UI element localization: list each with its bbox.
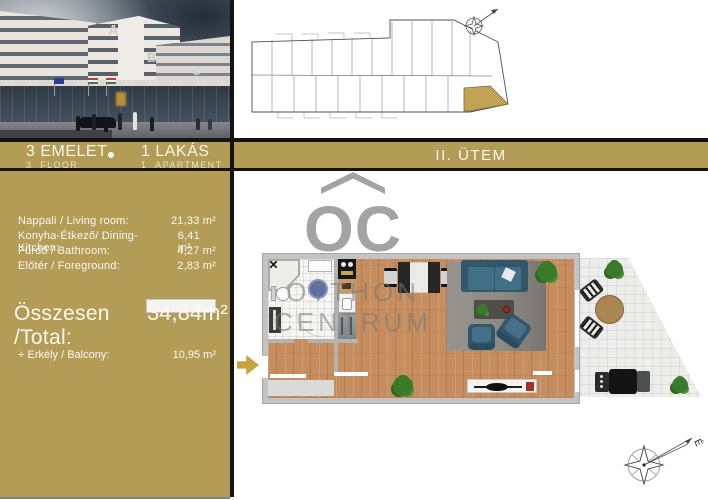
interior-wall (334, 343, 338, 373)
highlighted-unit (464, 86, 508, 111)
potted-plant (537, 262, 557, 282)
floor-plan-area: OC OTTHON CENTRUM (234, 171, 708, 500)
balcony-table (595, 295, 624, 324)
kitchen-counter (338, 259, 356, 339)
glass-storefront (0, 86, 230, 122)
room-name: Fürdő / Bathroom: (18, 245, 110, 260)
listing-sheet: A B C (0, 0, 708, 500)
room-area: 4,27 m² (177, 245, 216, 260)
pedestrian (133, 112, 137, 130)
interior-wall (308, 339, 358, 343)
potted-plant (393, 376, 413, 396)
building-photo: A B C (0, 0, 230, 138)
bowl (503, 306, 510, 313)
balcony-label: + Erkély / Balcony: (18, 349, 109, 361)
building-letter-a: A (108, 22, 119, 39)
tv (486, 383, 508, 391)
crosswalk (0, 130, 112, 138)
fixture-marker-icon (270, 261, 277, 268)
washing-machine (269, 307, 281, 333)
worktop (338, 279, 356, 293)
kitchen-sink (338, 293, 356, 313)
tv-stand (467, 379, 537, 393)
pedestrian (196, 118, 200, 130)
compass-north-label: É (691, 437, 704, 449)
interior-wall (268, 339, 294, 343)
pedestrian (104, 117, 108, 132)
room-name: Konyha-Étkező/ Dining-Kitchen: (18, 230, 178, 245)
washbasin (308, 279, 328, 299)
pedestrian (150, 117, 154, 131)
fridge (338, 313, 356, 339)
key-plan-drawing (242, 2, 512, 132)
eu-flag (54, 78, 64, 84)
total-row: Összesen /Total: 34,84m² (14, 299, 216, 350)
building-letter-c: C (192, 64, 201, 78)
room-area: 2,83 m² (177, 260, 216, 275)
balcony-row: + Erkély / Balcony: 10,95 m² (18, 349, 216, 361)
balcony-value: 10,95 m² (173, 349, 216, 361)
dining-chair (384, 268, 397, 287)
balcony-plant (606, 261, 623, 278)
hungarian-flag (88, 78, 98, 84)
room-row: Fürdő / Bathroom: 4,27 m² (18, 245, 216, 260)
sofa (461, 260, 528, 292)
car-silhouette (80, 117, 116, 128)
total-label: Összesen /Total: (14, 302, 146, 350)
entrance-door (262, 356, 268, 378)
watermark-roof-icon (321, 172, 385, 194)
media-box (526, 382, 534, 391)
balcony-plant (672, 377, 688, 393)
total-value: 34,84m² (146, 299, 216, 313)
threshold (270, 374, 306, 378)
pedestrian (92, 114, 96, 130)
balcony-door (574, 370, 580, 392)
threshold (533, 371, 552, 375)
room-list: Nappali / Living room: 21,33 m² Konyha-É… (18, 215, 216, 275)
bathroom-vanity (308, 260, 332, 272)
watermark-logo: OC (234, 199, 472, 260)
room-name: Nappali / Living room: (18, 215, 129, 230)
grill (595, 369, 650, 394)
floor-label-hu: 3 EMELET (26, 145, 107, 159)
stove (338, 259, 356, 279)
room-name: Előtér / Foreground: (18, 260, 120, 275)
foyer-mat (268, 380, 334, 396)
room-row: Nappali / Living room: 21,33 m² (18, 215, 216, 230)
toilet (276, 287, 290, 301)
pedestrian (76, 116, 80, 131)
info-bar: 3 EMELET 3 FLOOR 1 LAKÁS 1 APARTMENT (0, 142, 230, 168)
pedestrian (118, 113, 122, 130)
building-letter-b: B (147, 50, 156, 65)
floor-info: 3 EMELET 3 FLOOR (26, 145, 107, 170)
pedestrian (208, 119, 212, 130)
room-area: 6,41 m² (178, 230, 216, 245)
area-summary-panel: Nappali / Living room: 21,33 m² Konyha-É… (0, 171, 230, 497)
apartment-info: 1 LAKÁS 1 APARTMENT (141, 145, 222, 170)
window (574, 290, 580, 347)
table-plant (477, 304, 488, 315)
room-row: Előtér / Foreground: 2,83 m² (18, 260, 216, 275)
armchair (468, 324, 495, 350)
building-key-plan (234, 0, 708, 138)
room-row: Konyha-Étkező/ Dining-Kitchen: 6,41 m² (18, 230, 216, 245)
balcony (580, 258, 701, 397)
hungarian-flag (106, 78, 116, 84)
threshold (334, 372, 368, 376)
storefront-light (116, 92, 126, 106)
room-area: 21,33 m² (171, 215, 216, 230)
phase-band: II. ÜTEM (234, 142, 708, 168)
compass-rose: É (612, 429, 704, 493)
separator-dot (108, 152, 114, 158)
dining-table (398, 262, 440, 293)
apartment-label-hu: 1 LAKÁS (141, 145, 222, 159)
entrance-arrow-icon (237, 355, 259, 375)
phase-label: II. ÜTEM (435, 147, 506, 164)
